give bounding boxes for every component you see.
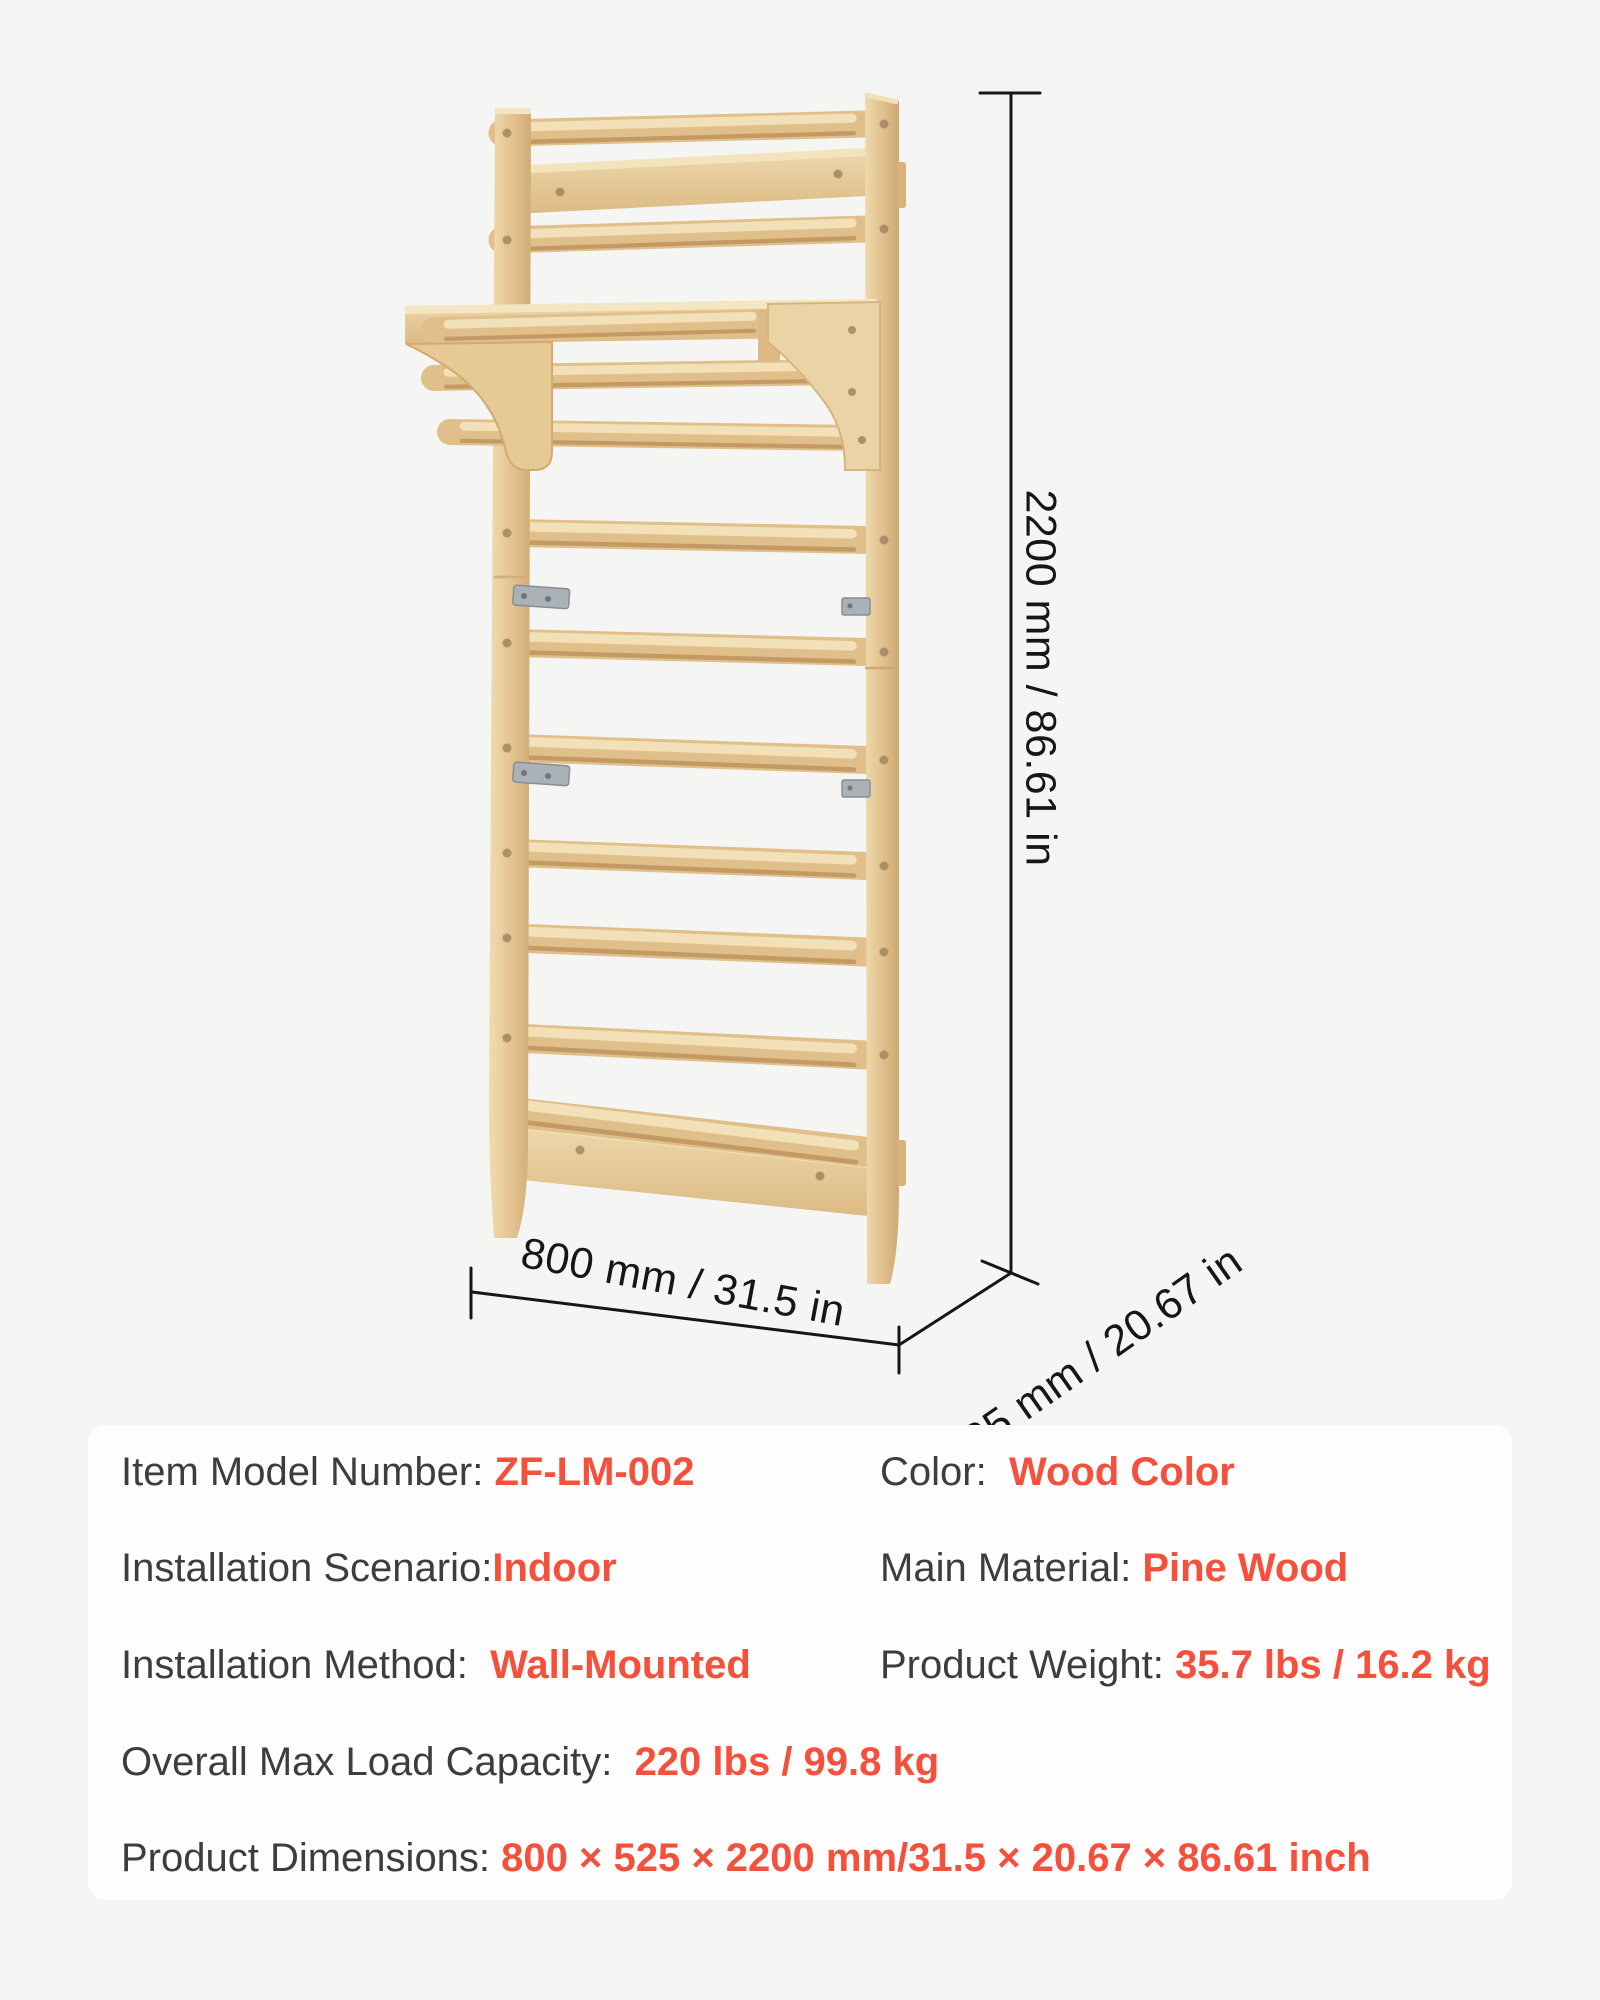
spec-value: ZF-LM-002 bbox=[494, 1450, 694, 1494]
spec-panel: Item Model Number: ZF-LM-002 Color: Wood… bbox=[88, 1425, 1512, 1900]
spec-label: Color: bbox=[880, 1450, 1009, 1494]
spec-label: Installation Scenario: bbox=[121, 1546, 492, 1590]
page: 2200 mm / 86.61 in 800 mm / 31.5 in 525 … bbox=[0, 0, 1600, 2000]
spec-label: Installation Method: bbox=[121, 1643, 490, 1687]
spec-row-dimensions: Product Dimensions: 800 × 525 × 2200 mm/… bbox=[88, 1830, 1512, 1886]
ladder-illustration bbox=[405, 93, 906, 1284]
spec-label: Product Dimensions: bbox=[121, 1836, 501, 1880]
spec-value: 800 × 525 × 2200 mm/31.5 × 20.67 × 86.61… bbox=[501, 1836, 1371, 1880]
spec-label: Product Weight: bbox=[880, 1643, 1175, 1687]
spec-cell: Installation Method: Wall-Mounted bbox=[121, 1637, 751, 1693]
dimension-height-label: 2200 mm / 86.61 in bbox=[1016, 489, 1065, 866]
spec-cell: Main Material: Pine Wood bbox=[880, 1540, 1348, 1596]
spec-value: 220 lbs / 99.8 kg bbox=[635, 1740, 940, 1784]
product-image bbox=[0, 0, 1600, 1425]
spec-label: Overall Max Load Capacity: bbox=[121, 1740, 635, 1784]
spec-cell: Item Model Number: ZF-LM-002 bbox=[121, 1444, 694, 1500]
spec-label: Main Material: bbox=[880, 1546, 1142, 1590]
spec-value: Indoor bbox=[492, 1546, 616, 1590]
spec-value: Pine Wood bbox=[1142, 1546, 1348, 1590]
spec-cell: Overall Max Load Capacity: 220 lbs / 99.… bbox=[121, 1734, 939, 1790]
spec-value: Wood Color bbox=[1009, 1450, 1235, 1494]
spec-row-capacity: Overall Max Load Capacity: 220 lbs / 99.… bbox=[88, 1734, 1512, 1790]
spec-cell: Product Dimensions: 800 × 525 × 2200 mm/… bbox=[121, 1830, 1371, 1886]
spec-row-method: Installation Method: Wall-Mounted Produc… bbox=[88, 1637, 1512, 1693]
spec-cell: Installation Scenario:Indoor bbox=[121, 1540, 617, 1596]
spec-cell: Color: Wood Color bbox=[880, 1444, 1235, 1500]
spec-value: 35.7 lbs / 16.2 kg bbox=[1175, 1643, 1491, 1687]
spec-row-scenario: Installation Scenario:Indoor Main Materi… bbox=[88, 1540, 1512, 1596]
spec-cell: Product Weight: 35.7 lbs / 16.2 kg bbox=[880, 1637, 1491, 1693]
spec-row-model: Item Model Number: ZF-LM-002 Color: Wood… bbox=[88, 1444, 1512, 1500]
spec-value: Wall-Mounted bbox=[490, 1643, 751, 1687]
product-image-area: 2200 mm / 86.61 in 800 mm / 31.5 in 525 … bbox=[0, 0, 1600, 1425]
spec-label: Item Model Number: bbox=[121, 1450, 494, 1494]
